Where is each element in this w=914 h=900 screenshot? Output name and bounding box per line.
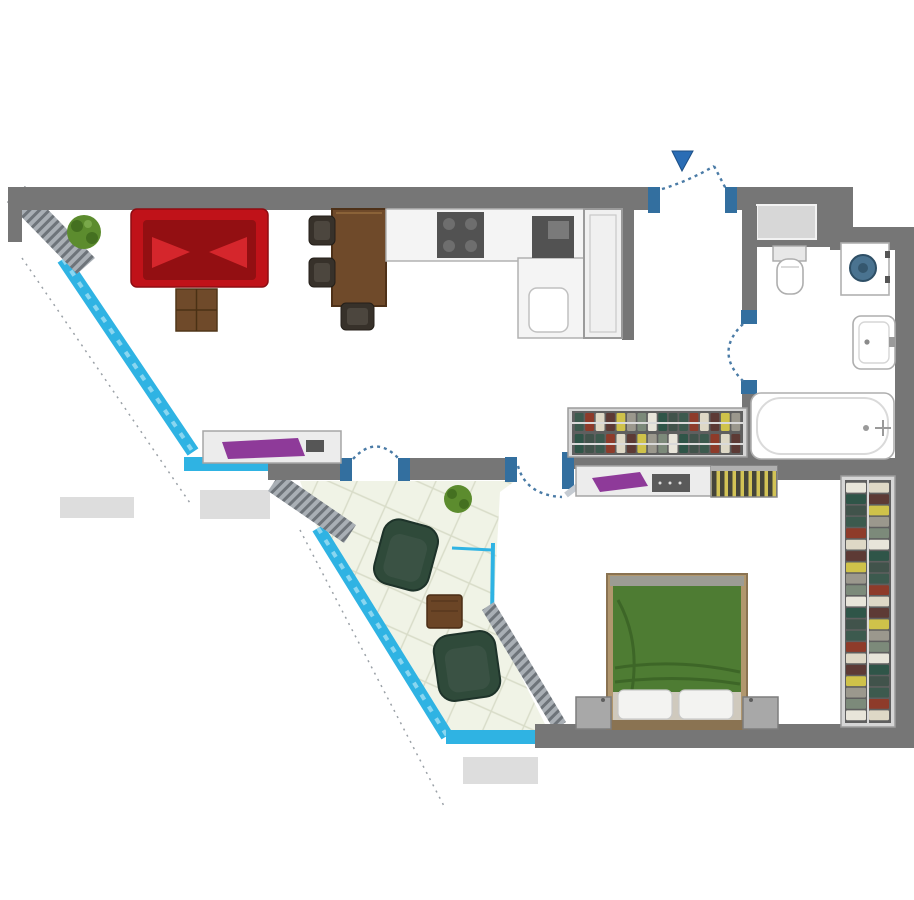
dining-chair-1 [309,216,335,245]
clothing-item [869,631,889,641]
bathroom-door-swing [729,324,744,381]
hall-wardrobe [568,408,747,457]
entrance-jamb-left [648,187,660,213]
living-balcony-door-jamb-right [398,458,410,481]
exterior-mat-bottom [463,757,538,784]
clothing-item [869,574,889,584]
clothing-item [869,710,889,720]
bedroom-glass-partition-top [452,548,492,550]
sofa [131,209,268,287]
bathroom-door-jamb-bottom [741,380,757,394]
clothing-item [869,699,889,709]
bedroom-radiator [711,466,777,497]
exterior-mat-left [60,497,134,518]
dining-chair-2 [309,258,335,287]
entrance-door-leaf [714,166,726,189]
bedroom-group [576,466,895,729]
clothing-item [846,631,866,641]
entrance-arrow-icon [672,151,693,171]
clothing-item [869,551,889,561]
bedroom-wardrobe-clothes-col-2 [869,483,889,720]
wall-right [895,240,914,748]
clothing-item [846,665,866,675]
washbasin [853,316,895,369]
overhang-dashed-line-upper [22,258,190,503]
bedroom-dresser [576,466,712,496]
living-balcony-door-jamb-left [340,458,352,481]
exterior-mat-mid [200,490,270,519]
bedroom-door-swing [518,466,562,497]
clothing-item [846,540,866,550]
wall-top-main [8,187,660,210]
clothing-item [846,688,866,698]
floor-plan-canvas [0,0,914,900]
bedroom-door-jamb-left [505,457,517,482]
dining-chair-3 [341,303,374,330]
coffee-table [176,289,217,331]
toilet [773,246,806,294]
bedroom-wardrobe-clothes-col-1 [846,483,866,720]
corner-basin [529,288,568,332]
clothing-item [846,619,866,629]
clothing-item [846,517,866,527]
entrance-jamb-right [725,187,737,213]
kitchen-group [386,209,622,338]
bathroom-group [751,243,895,459]
clothing-item [869,665,889,675]
living-sideboard [203,431,341,463]
wall-bathroom-left-upper [742,206,757,314]
clothing-item [869,654,889,664]
clothing-item [869,597,889,607]
clothing-item [846,551,866,561]
bathroom-door-jamb-top [741,310,757,324]
clothing-item [846,676,866,686]
clothing-item [846,642,866,652]
clothing-item [846,585,866,595]
washing-machine [841,243,890,295]
clothing-item [869,642,889,652]
bathtub [751,393,894,459]
clothing-item [869,688,889,698]
clothing-item [846,506,866,516]
wall-living-south-mid [410,458,507,480]
clothing-item [846,608,866,618]
clothing-item [846,710,866,720]
potted-plant-living [67,215,101,249]
clothing-item [869,676,889,686]
stove [437,212,484,258]
balcony-armchair-2 [432,629,503,703]
duct-shaft [757,205,816,239]
clothing-item [846,699,866,709]
clothing-item [846,494,866,504]
clothing-item [869,517,889,527]
clothing-item [869,494,889,504]
clothing-item [869,528,889,538]
entrance-door-swing [662,166,714,189]
double-bed [607,574,747,729]
dining-table [332,209,386,306]
clothing-item [846,563,866,573]
clothing-item [846,528,866,538]
wall-kitchen-divider [622,190,634,340]
potted-plant-balcony [444,485,472,513]
nightstand-right [743,697,778,729]
clothing-item [869,608,889,618]
nightstand-left [576,697,611,729]
balcony-side-table [427,595,462,628]
clothing-item [869,483,889,493]
clothing-item [869,506,889,516]
floor-plan-drawing [0,0,914,900]
clothing-item [869,585,889,595]
living-balcony-door-swing [353,447,399,460]
clothing-item [846,597,866,607]
bedroom-wardrobe [841,476,895,727]
clothing-item [869,563,889,573]
clothing-item [869,540,889,550]
clothing-item [846,574,866,584]
clothing-item [846,483,866,493]
clothing-item [869,619,889,629]
clothing-item [846,654,866,664]
sink-unit [532,216,574,258]
